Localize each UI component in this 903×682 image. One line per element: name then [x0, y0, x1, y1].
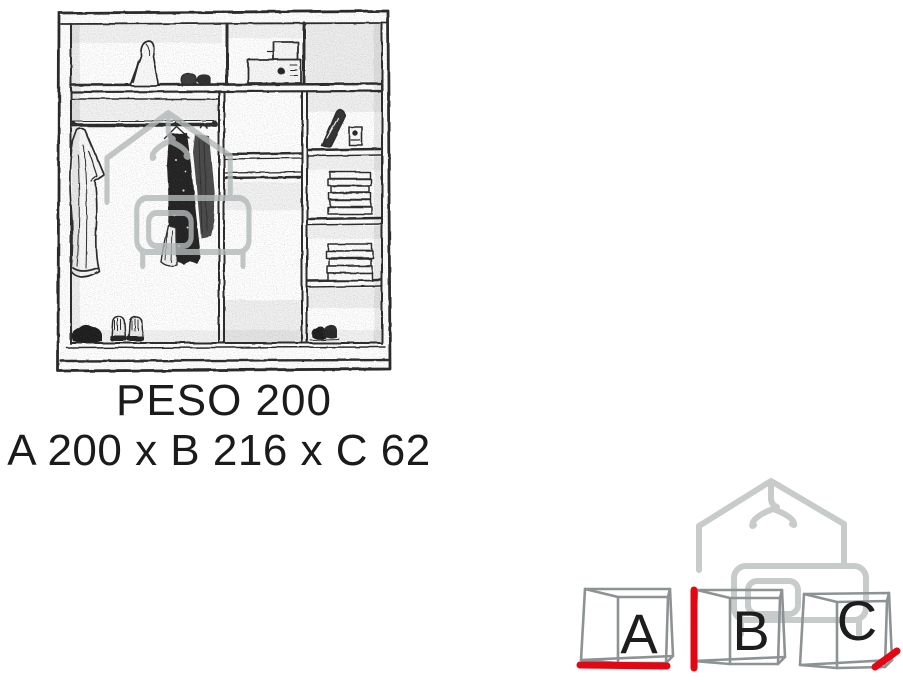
width-indicator-line: [580, 665, 667, 666]
cube-b-label: B: [732, 603, 769, 659]
product-dimensions: A 200 x B 216 x C 62: [7, 429, 430, 473]
cube-c-label: C: [837, 593, 877, 649]
product-model-title: PESO 200: [116, 379, 332, 423]
diagram-graphics: [0, 0, 903, 682]
cube-a-label: A: [620, 606, 657, 662]
product-diagram: PESO 200 A 200 x B 216 x C 62 A B C: [0, 0, 903, 682]
